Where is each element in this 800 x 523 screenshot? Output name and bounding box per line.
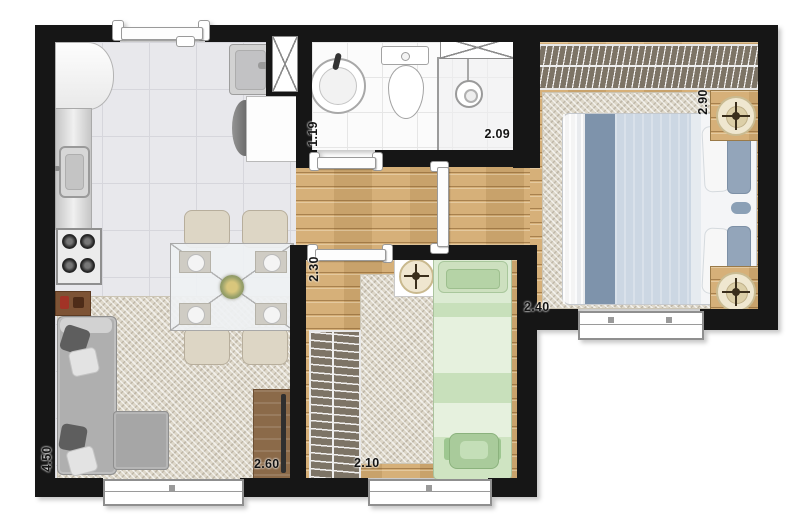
placemat bbox=[255, 303, 287, 325]
wall bbox=[310, 478, 368, 497]
bed-pillow bbox=[446, 269, 500, 289]
wall bbox=[700, 309, 778, 330]
wall bbox=[517, 245, 537, 497]
bedroom-single-rug bbox=[360, 274, 436, 464]
utility-shaft-duct-icon bbox=[272, 36, 298, 92]
dim-bedroom-single-depth: 2.30 bbox=[307, 252, 321, 286]
apartment-plan: 1.19 2.09 2.90 2.40 2.30 2.10 4.50 2.60 bbox=[0, 0, 800, 523]
single-bed bbox=[433, 254, 512, 480]
wall bbox=[240, 478, 310, 497]
bed-pillow bbox=[731, 202, 751, 214]
wardrobe-double bbox=[529, 44, 762, 90]
bedroom-double-door bbox=[437, 167, 449, 247]
wall bbox=[35, 478, 103, 497]
burner-icon bbox=[62, 258, 77, 273]
dining-table bbox=[170, 243, 294, 331]
placemat bbox=[255, 251, 287, 273]
placemat bbox=[179, 251, 211, 273]
washing-machine bbox=[246, 96, 297, 162]
wall bbox=[35, 25, 55, 497]
burner-icon bbox=[62, 234, 77, 249]
kitchen-shelf bbox=[55, 291, 91, 316]
wall bbox=[513, 25, 540, 168]
toilet-tank bbox=[381, 46, 429, 65]
bedroom-double-window bbox=[578, 311, 704, 340]
burner-icon bbox=[80, 234, 95, 249]
side-table-top-icon bbox=[399, 259, 434, 294]
nightstand-table-icon bbox=[716, 96, 756, 136]
wall bbox=[375, 150, 523, 167]
placemat bbox=[179, 303, 211, 325]
bathroom-door bbox=[317, 157, 376, 169]
sofa-chaise bbox=[113, 411, 169, 470]
door-latch bbox=[176, 36, 195, 47]
wall bbox=[758, 25, 778, 330]
dim-bedroom-double-depth: 2.90 bbox=[696, 85, 710, 119]
shower-head-icon bbox=[455, 80, 483, 108]
flower-centerpiece bbox=[220, 275, 244, 299]
bedroom-single-window bbox=[368, 479, 492, 506]
dim-bedroom-double-width: 2.40 bbox=[524, 300, 560, 314]
burner-icon bbox=[80, 258, 95, 273]
dining-chair bbox=[184, 327, 230, 365]
bed-cushion bbox=[449, 433, 499, 469]
living-window bbox=[103, 479, 244, 506]
nightstand-table-icon bbox=[716, 272, 756, 312]
shelf-item bbox=[73, 297, 84, 308]
plate-icon bbox=[263, 254, 281, 272]
dim-bathroom-depth: 1.19 bbox=[306, 117, 320, 151]
shelf-item bbox=[60, 296, 69, 309]
plate-icon bbox=[187, 254, 205, 272]
dim-bathroom-width: 2.09 bbox=[466, 127, 510, 141]
dining-chair bbox=[242, 327, 288, 365]
kitchen-sink bbox=[59, 146, 90, 198]
stove bbox=[56, 228, 102, 285]
plate-icon bbox=[187, 306, 205, 324]
wall bbox=[290, 245, 306, 478]
dim-bedroom-single-width: 2.10 bbox=[354, 456, 390, 470]
plate-icon bbox=[263, 306, 281, 324]
dim-living-width: 2.60 bbox=[254, 457, 290, 471]
floor-plan: 1.19 2.09 2.90 2.40 2.30 2.10 4.50 2.60 bbox=[0, 0, 800, 523]
dim-living-depth: 4.50 bbox=[40, 442, 54, 476]
fridge bbox=[55, 42, 114, 110]
wall bbox=[384, 245, 517, 260]
bedroom-single-door bbox=[315, 249, 386, 261]
